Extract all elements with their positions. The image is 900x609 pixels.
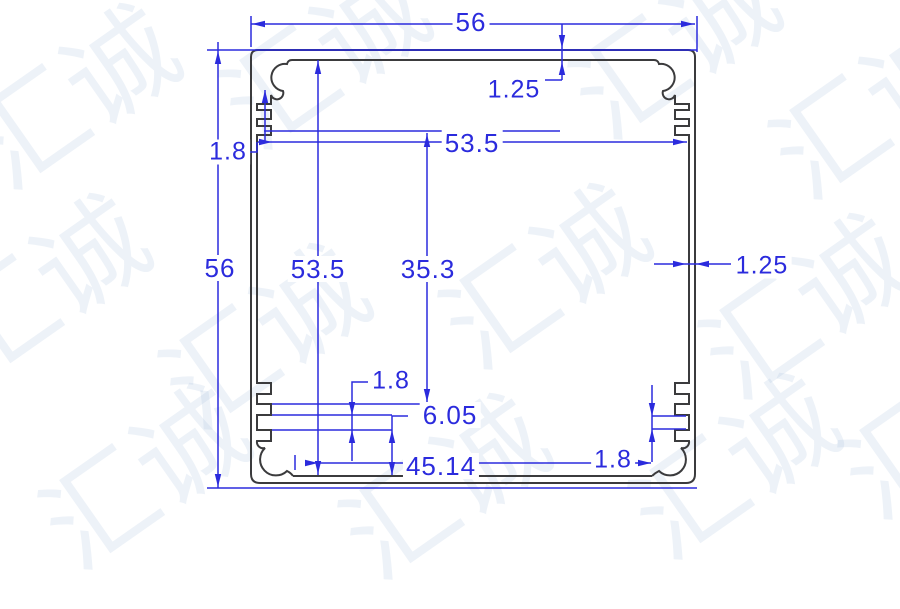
dim-label-left-wall: 1.8 bbox=[206, 140, 250, 165]
dim-label-right-wall: 1.25 bbox=[733, 254, 792, 279]
dim-label-rib-slot-left: 1.8 bbox=[369, 369, 413, 394]
right-inner-wall bbox=[652, 60, 689, 476]
dim-label-inner-height: 53.5 bbox=[288, 256, 349, 282]
dim-label-rib-offset: 6.05 bbox=[420, 402, 481, 428]
dim-label-top-wall: 1.25 bbox=[485, 78, 544, 103]
dim-label-top-width: 56 bbox=[453, 9, 490, 35]
dim-label-boss-spacing: 45.14 bbox=[403, 453, 479, 479]
dim-label-inner-width: 53.5 bbox=[442, 130, 503, 156]
dim-label-overall-height: 56 bbox=[202, 255, 239, 281]
dim-label-rib-slot-right: 1.8 bbox=[591, 448, 635, 473]
cad-drawing-canvas: 汇诚汇诚汇诚汇诚汇诚汇诚汇诚汇诚汇诚汇诚汇诚汇诚 bbox=[0, 0, 900, 500]
dim-label-slot-height: 35.3 bbox=[398, 256, 459, 282]
